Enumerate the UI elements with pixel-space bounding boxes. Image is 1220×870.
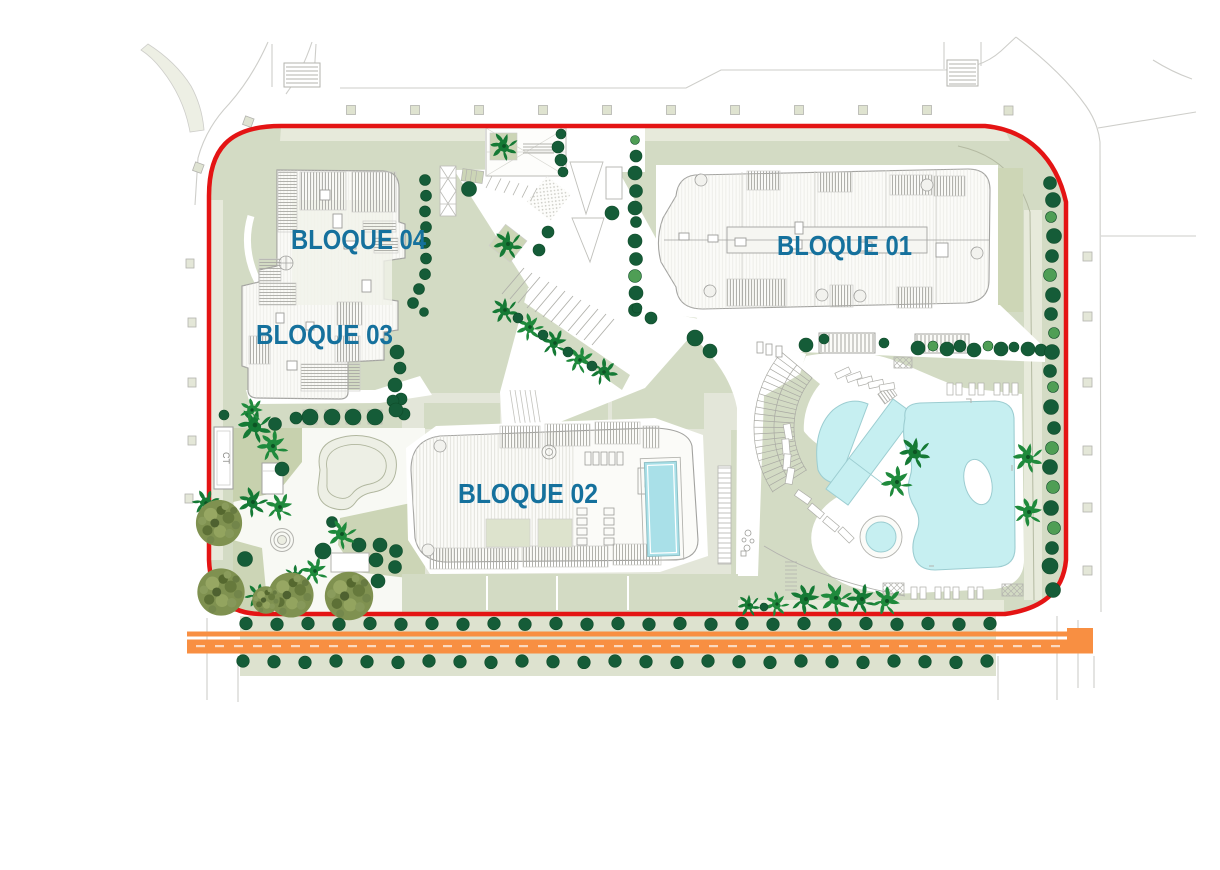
svg-text:BLOQUE 04: BLOQUE 04 [291,224,426,255]
svg-text:BLOQUE 03: BLOQUE 03 [256,319,393,350]
svg-text:BLOQUE 01: BLOQUE 01 [777,230,912,261]
svg-text:BLOQUE 02: BLOQUE 02 [458,478,598,509]
svg-text:CT: CT [221,452,231,464]
